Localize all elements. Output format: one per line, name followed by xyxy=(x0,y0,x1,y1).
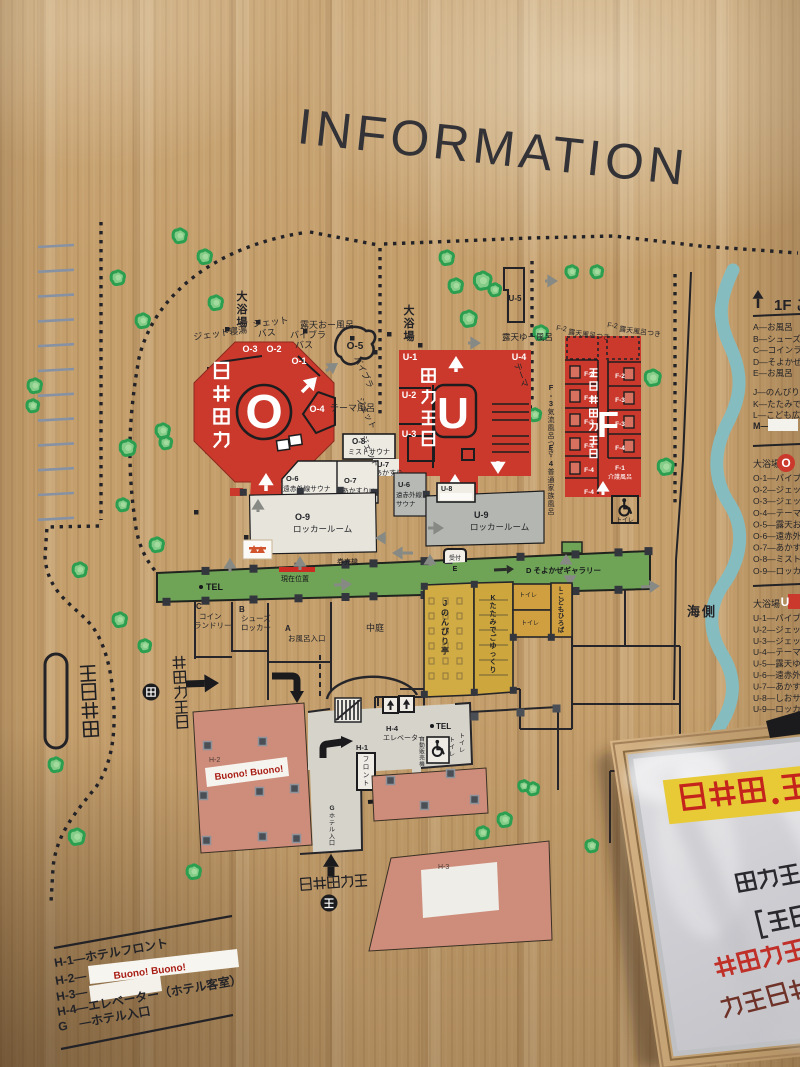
svg-text:O-5: O-5 xyxy=(347,341,364,352)
svg-text:ど: ど xyxy=(558,598,565,607)
svg-text:G: G xyxy=(329,805,334,812)
svg-text:族: 族 xyxy=(548,491,555,500)
svg-text:口: 口 xyxy=(329,840,335,847)
svg-text:び: び xyxy=(441,627,449,637)
svg-text:み: み xyxy=(490,618,497,626)
svg-text:ロッカー: ロッカー xyxy=(241,623,271,632)
svg-text:大浴場: 大浴場 xyxy=(753,458,780,469)
svg-text:U-3—ジェット: U-3—ジェット xyxy=(753,636,800,646)
svg-text:K—たたみで: K—たたみで xyxy=(753,399,800,409)
svg-text:トイレ: トイレ xyxy=(521,621,539,627)
svg-text:E: E xyxy=(453,566,458,573)
svg-text:E—お風呂: E—お風呂 xyxy=(753,368,793,378)
svg-text:U-4—テーマ風: U-4—テーマ風 xyxy=(753,647,800,657)
svg-text:O-1—バイブラ: O-1—バイブラ xyxy=(753,473,800,483)
svg-text:O-9—ロッカー: O-9—ロッカー xyxy=(753,566,800,576)
svg-text:大: 大 xyxy=(237,289,248,303)
svg-text:U-8: U-8 xyxy=(441,486,452,493)
svg-text:機: 機 xyxy=(419,760,425,768)
svg-text:場: 場 xyxy=(404,329,415,343)
svg-text:B—シューズ: B—シューズ xyxy=(753,334,800,344)
svg-text:お風呂入口: お風呂入口 xyxy=(288,634,326,643)
svg-text:ジェット: ジェット xyxy=(355,396,378,431)
svg-text:O-3—ジェット: O-3—ジェット xyxy=(753,496,800,506)
svg-text:O-9: O-9 xyxy=(295,512,310,522)
svg-text:ご: ご xyxy=(490,633,498,642)
svg-text:中庭: 中庭 xyxy=(366,622,384,633)
svg-text:バス: バス xyxy=(295,340,313,350)
svg-text:C—コインラ: C—コインラ xyxy=(753,345,800,355)
svg-text:ジェット寝湯: ジェット寝湯 xyxy=(193,324,248,342)
svg-text:F-2: F-2 xyxy=(615,373,625,380)
svg-text:U-4: U-4 xyxy=(512,352,527,362)
svg-text:通: 通 xyxy=(548,475,555,484)
svg-text:トイレ: トイレ xyxy=(616,518,634,524)
svg-text:の: の xyxy=(441,609,449,618)
svg-text:フ: フ xyxy=(363,755,370,763)
svg-text:O-7: O-7 xyxy=(344,476,357,485)
svg-text:ン: ン xyxy=(363,772,370,779)
svg-text:U-2: U-2 xyxy=(402,390,417,400)
svg-text:ル: ル xyxy=(329,828,335,834)
svg-text:O-2: O-2 xyxy=(266,344,281,354)
svg-text:ん: ん xyxy=(441,618,449,627)
svg-text:入: 入 xyxy=(329,833,335,840)
svg-text:バス: バス xyxy=(257,327,276,339)
svg-text:L—こども広: L—こども広 xyxy=(753,410,800,420)
svg-text:こ: こ xyxy=(558,592,564,600)
svg-text:普: 普 xyxy=(548,467,555,476)
svg-text:O-4—テーマ風: O-4—テーマ風 xyxy=(753,508,800,518)
svg-text:ランドリー: ランドリー xyxy=(194,621,232,630)
svg-text:3: 3 xyxy=(549,399,553,408)
svg-text:で: で xyxy=(490,626,497,634)
svg-text:ろ: ろ xyxy=(558,619,564,627)
svg-text:O-1: O-1 xyxy=(291,356,306,366)
svg-text:U-7—あかすり: U-7—あかすり xyxy=(753,681,800,691)
svg-text:ト: ト xyxy=(449,738,455,744)
svg-text:レ: レ xyxy=(459,748,465,754)
svg-text:流: 流 xyxy=(548,415,555,424)
svg-text:F-2: F-2 xyxy=(556,325,567,333)
svg-text:U-3: U-3 xyxy=(402,429,417,439)
svg-text:ロ: ロ xyxy=(363,764,370,771)
svg-text:亭: 亭 xyxy=(441,646,449,656)
svg-text:ロッカールーム: ロッカールーム xyxy=(470,522,529,532)
svg-text:浴: 浴 xyxy=(404,316,416,330)
svg-text:U: U xyxy=(781,595,790,609)
svg-text:イ: イ xyxy=(449,745,455,751)
svg-text:A—お風呂: A—お風呂 xyxy=(753,322,793,332)
svg-text:4: 4 xyxy=(549,459,554,468)
svg-text:J—のんびり: J—のんびり xyxy=(753,387,800,397)
svg-text:A: A xyxy=(285,624,291,633)
svg-text:露天ゆー風呂: 露天ゆー風呂 xyxy=(502,332,553,342)
svg-text:大浴場: 大浴場 xyxy=(753,598,780,609)
svg-text:U-6: U-6 xyxy=(398,480,410,489)
svg-text:ひ: ひ xyxy=(558,612,565,620)
svg-text:B: B xyxy=(239,605,245,614)
svg-text:動: 動 xyxy=(419,741,425,749)
svg-text:U-1—バイブラ: U-1—バイブラ xyxy=(753,613,800,623)
svg-text:売: 売 xyxy=(419,754,425,762)
svg-text:呂: 呂 xyxy=(548,432,555,440)
svg-text:遠赤外線: 遠赤外線 xyxy=(396,490,423,499)
svg-text:露天おー風呂: 露天おー風呂 xyxy=(300,320,354,330)
svg-text:レ: レ xyxy=(449,752,455,758)
svg-text:F-4: F-4 xyxy=(615,445,625,452)
svg-text:F-2: F-2 xyxy=(607,322,618,330)
svg-text:H-3: H-3 xyxy=(438,864,449,871)
svg-text:コイン: コイン xyxy=(199,612,222,621)
svg-text:テ: テ xyxy=(329,820,335,827)
svg-text:O-3: O-3 xyxy=(242,344,257,354)
svg-text:り: り xyxy=(490,665,497,674)
svg-text:ば: ば xyxy=(558,625,565,634)
svg-text:っ: っ xyxy=(490,651,497,658)
svg-text:バイブラ: バイブラ xyxy=(290,329,326,340)
svg-text:U-9—ロッカー: U-9—ロッカー xyxy=(753,704,800,714)
svg-text:大: 大 xyxy=(404,303,415,317)
svg-text:ト: ト xyxy=(363,780,370,787)
svg-text:TEL: TEL xyxy=(436,722,451,731)
svg-text:O-2—ジェット: O-2—ジェット xyxy=(753,485,800,495)
svg-text:U-6—遠赤外線: U-6—遠赤外線 xyxy=(753,670,800,680)
svg-text:現在位置: 現在位置 xyxy=(281,574,309,583)
svg-text:F-4: F-4 xyxy=(584,489,594,496)
svg-text:D そよかぜギャラリー: D そよかぜギャラリー xyxy=(526,565,601,575)
svg-text:受付: 受付 xyxy=(449,554,461,562)
svg-text:販: 販 xyxy=(419,747,425,755)
svg-text:ホ: ホ xyxy=(329,813,335,820)
svg-text:U-1: U-1 xyxy=(403,352,418,362)
svg-text:M—: M— xyxy=(753,421,770,431)
svg-text:トイレ: トイレ xyxy=(519,593,537,599)
svg-text:O-4: O-4 xyxy=(309,404,324,414)
svg-text:O: O xyxy=(781,456,790,470)
svg-text:D—そよかぜ: D—そよかぜ xyxy=(753,357,800,367)
svg-text:F-3: F-3 xyxy=(615,397,625,404)
svg-text:ロッカールーム: ロッカールーム xyxy=(293,524,352,534)
svg-text:O-6—遠赤外線: O-6—遠赤外線 xyxy=(753,531,800,541)
svg-text:く: く xyxy=(490,658,497,666)
svg-text:券売機: 券売機 xyxy=(337,557,358,566)
svg-text:H-4: H-4 xyxy=(386,724,399,733)
svg-text:F-4: F-4 xyxy=(584,467,594,474)
svg-text:U-8—しおサウ: U-8—しおサウ xyxy=(753,693,800,703)
svg-text:遠赤外線サウナ: 遠赤外線サウナ xyxy=(283,484,331,493)
svg-text:O-8—ミストサ: O-8—ミストサ xyxy=(753,554,800,564)
svg-text:U-2—ジェット: U-2—ジェット xyxy=(753,624,800,634)
svg-text:も: も xyxy=(558,605,564,613)
svg-text:U-9: U-9 xyxy=(474,510,489,520)
svg-text:O: O xyxy=(245,386,282,439)
svg-text:O-6: O-6 xyxy=(286,474,299,483)
svg-text:O-5—露天おー: O-5—露天おー xyxy=(753,519,800,529)
svg-text:た: た xyxy=(490,609,497,618)
svg-text:C: C xyxy=(196,602,202,611)
svg-text:K: K xyxy=(490,595,495,602)
svg-text:ゆ: ゆ xyxy=(490,642,497,650)
svg-text:バイブラ: バイブラ xyxy=(352,355,375,390)
svg-text:F-1: F-1 xyxy=(615,465,625,472)
svg-text:U-5—露天ゆー: U-5—露天ゆー xyxy=(753,659,800,669)
svg-text:介護風呂: 介護風呂 xyxy=(608,473,632,481)
svg-text:U-5: U-5 xyxy=(509,294,522,303)
svg-text:F: F xyxy=(597,404,619,445)
svg-text:サウナ: サウナ xyxy=(396,500,416,508)
svg-text:気: 気 xyxy=(548,407,555,416)
svg-text:U: U xyxy=(437,389,469,438)
svg-text:た: た xyxy=(490,601,497,610)
svg-text:J: J xyxy=(443,599,447,608)
svg-text:呂: 呂 xyxy=(548,508,555,516)
svg-text:H-2: H-2 xyxy=(209,757,220,764)
svg-text:ト: ト xyxy=(459,734,465,740)
svg-text:イ: イ xyxy=(459,741,465,747)
svg-text:風: 風 xyxy=(548,424,555,432)
svg-text:家: 家 xyxy=(548,483,555,492)
svg-text:1F ご案内: 1F ご案内 xyxy=(774,296,800,314)
svg-text:自: 自 xyxy=(419,735,425,743)
svg-text:浴: 浴 xyxy=(237,302,249,316)
svg-text:風: 風 xyxy=(548,500,555,508)
svg-text:海側: 海側 xyxy=(687,604,717,619)
svg-text:り: り xyxy=(441,637,449,646)
svg-text:シューズ: シューズ xyxy=(241,613,271,623)
svg-text:H-1: H-1 xyxy=(356,743,368,752)
svg-text:O-7—あかすり: O-7—あかすり xyxy=(753,543,800,553)
svg-text:TEL: TEL xyxy=(206,582,224,592)
